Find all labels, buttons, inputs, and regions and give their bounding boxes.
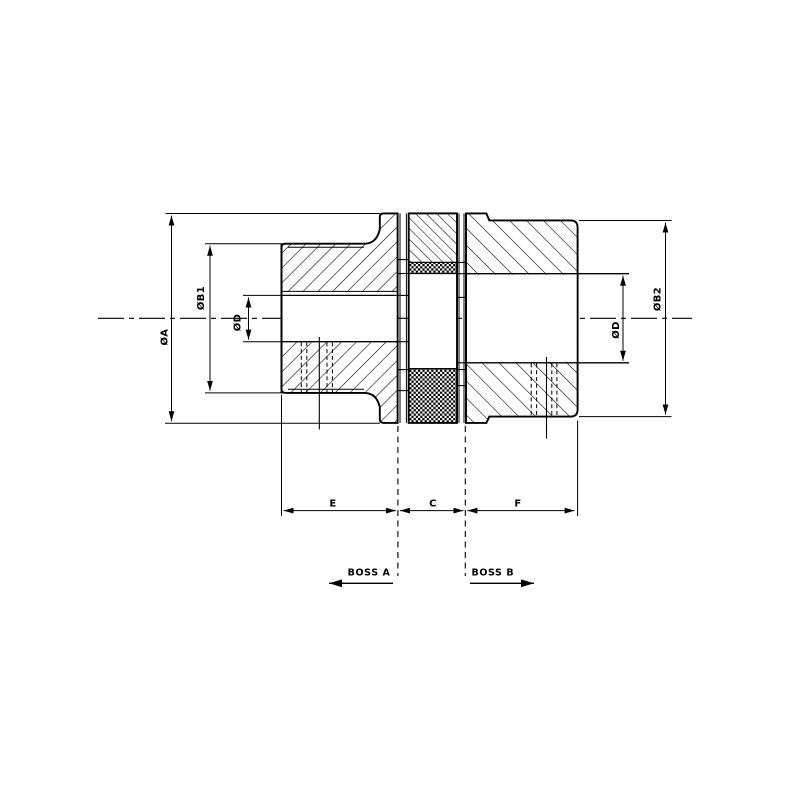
coupling-drawing-page: ØA ØB1 ØD ØD ØB2 E C F (0, 0, 800, 800)
left-bore (283, 292, 397, 341)
dim-label-phi-b2: ØB2 (652, 287, 664, 311)
dim-label-phi-d-left: ØD (232, 314, 244, 332)
element-bottom-elastomer (409, 369, 457, 423)
boss-a-label: BOSS A (348, 568, 391, 579)
element-top-elastomer (409, 262, 457, 273)
dim-label-phi-a: ØA (159, 329, 171, 346)
element-top-hatch (409, 213, 457, 262)
right-bore (467, 275, 577, 362)
boss-b-label: BOSS B (472, 568, 515, 579)
dim-label-c: C (429, 499, 437, 510)
coupling-technical-drawing: ØA ØB1 ØD ØD ØB2 E C F (0, 0, 800, 800)
dim-label-phi-b1: ØB1 (195, 286, 207, 310)
dim-label-e: E (329, 499, 336, 510)
dim-label-f: F (514, 499, 521, 510)
dim-label-phi-d-right: ØD (610, 321, 622, 339)
flexible-element-section (398, 213, 466, 423)
